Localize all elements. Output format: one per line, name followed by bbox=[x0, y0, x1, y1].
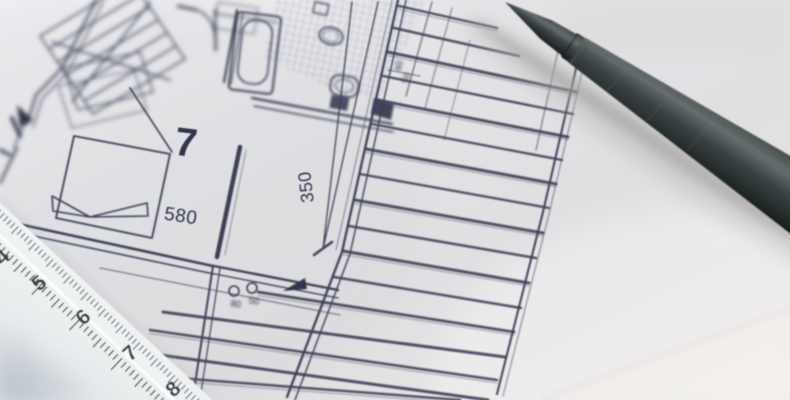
photo-canvas: 7 580 350 80 50 80 50 bbox=[0, 0, 790, 400]
dim-small-label: 50 bbox=[248, 295, 260, 307]
dim-small-label: 80 bbox=[393, 60, 405, 72]
floorplan-photo: 7 580 350 80 50 80 50 bbox=[0, 0, 790, 400]
dimension-350-label: 350 bbox=[294, 170, 318, 204]
dim-small-label: 80 bbox=[230, 298, 242, 310]
